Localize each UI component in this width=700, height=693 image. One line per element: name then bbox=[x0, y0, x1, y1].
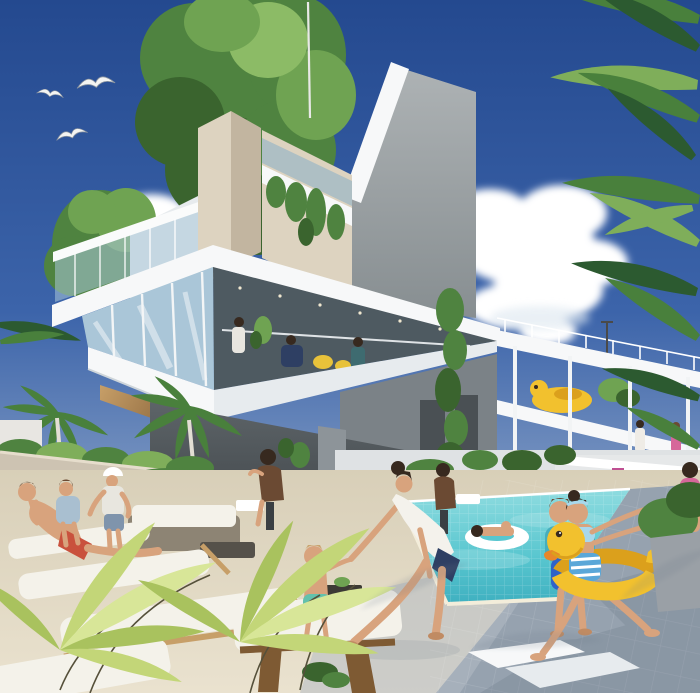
yellow-beanbag bbox=[313, 355, 333, 369]
wing-person bbox=[635, 420, 645, 452]
scene bbox=[0, 0, 700, 693]
rendering-image bbox=[0, 0, 700, 693]
corner-column-dark bbox=[231, 111, 261, 266]
